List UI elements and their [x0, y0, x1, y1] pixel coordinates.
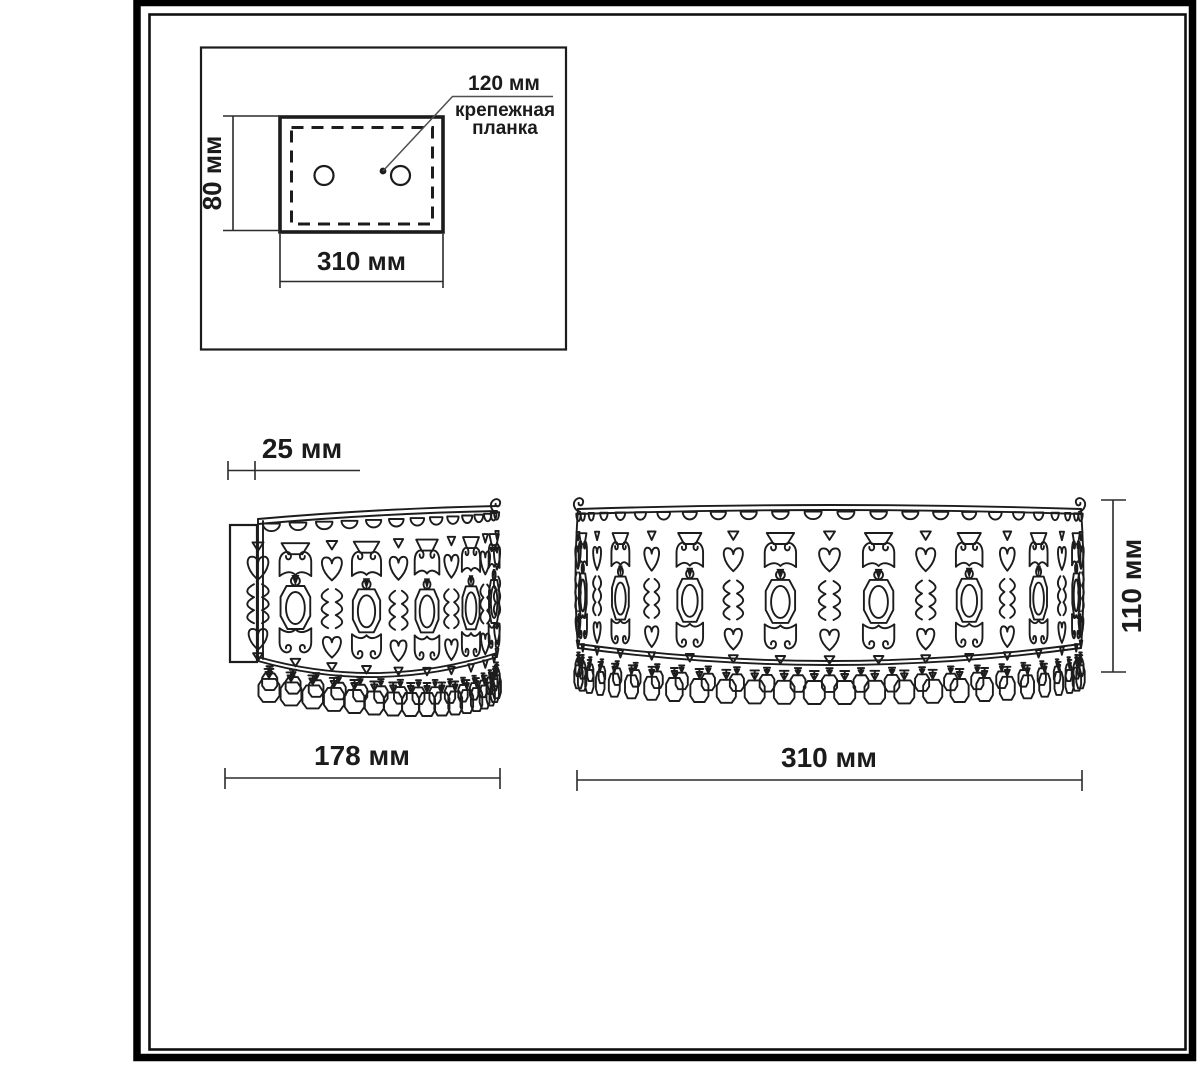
- callout-name-line2: планка: [472, 118, 538, 139]
- front-height-label: 110 мм: [1116, 539, 1147, 633]
- callout-value-label: 120 мм: [468, 72, 540, 95]
- technical-drawing: 120 мм крепежная планка 80 мм 310 мм 25 …: [0, 0, 1200, 1068]
- catalog-drawing-page: 120 мм крепежная планка 80 мм 310 мм 25 …: [0, 0, 1200, 1068]
- depth-label: 25 мм: [262, 433, 342, 464]
- side-width-label: 178 мм: [314, 740, 410, 771]
- front-width-label: 310 мм: [781, 742, 877, 773]
- inset-height-label: 80 мм: [197, 136, 227, 211]
- inset-width-label: 310 мм: [317, 246, 406, 276]
- paper-background: [0, 0, 1200, 1068]
